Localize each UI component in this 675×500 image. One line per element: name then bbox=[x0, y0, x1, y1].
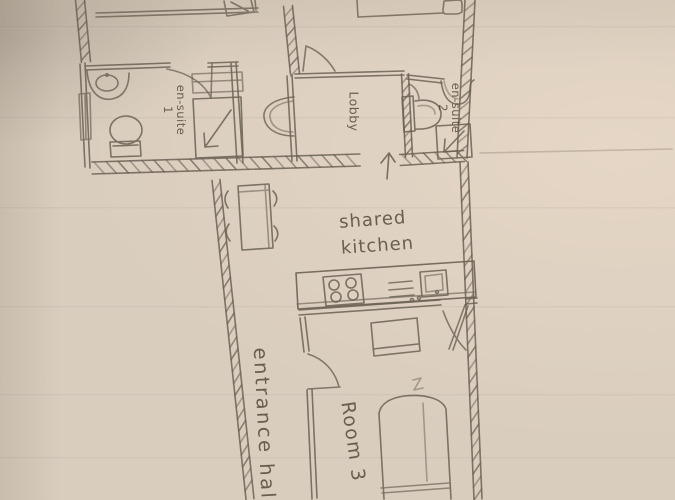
faint-ruled-line bbox=[480, 149, 672, 153]
floorplan-sketch bbox=[0, 0, 675, 500]
kitchen-counter bbox=[296, 261, 476, 309]
entrance-arrow bbox=[381, 153, 395, 179]
ensuite2-sink bbox=[441, 80, 474, 104]
lobby-walls bbox=[287, 71, 444, 161]
kitchen-drainer bbox=[389, 281, 414, 297]
room3-mark bbox=[413, 378, 423, 390]
bed-top-right bbox=[357, 0, 462, 17]
ensuite1-toilet bbox=[110, 116, 142, 157]
bed-top-left bbox=[96, 0, 258, 17]
ensuite1-sink bbox=[87, 71, 129, 99]
photo-of-floor-plan: en-suite 1 Lobby en-suite 2 shared kitch… bbox=[0, 0, 675, 500]
room3-bed bbox=[379, 396, 451, 499]
ensuite1-walls bbox=[79, 62, 243, 168]
room3-top-door bbox=[443, 305, 468, 350]
wall-top-left bbox=[76, 0, 91, 62]
lobby-door bbox=[303, 46, 335, 71]
wall-top-middle bbox=[284, 6, 300, 77]
room3-side-door bbox=[308, 354, 340, 389]
paper-stains bbox=[86, 18, 635, 166]
wall-entrance-hall-diagonal bbox=[212, 180, 254, 500]
kitchen-table bbox=[225, 184, 278, 250]
room3-desk bbox=[371, 318, 420, 356]
kitchen-sink bbox=[411, 270, 449, 302]
wall-right-lower bbox=[460, 162, 482, 500]
